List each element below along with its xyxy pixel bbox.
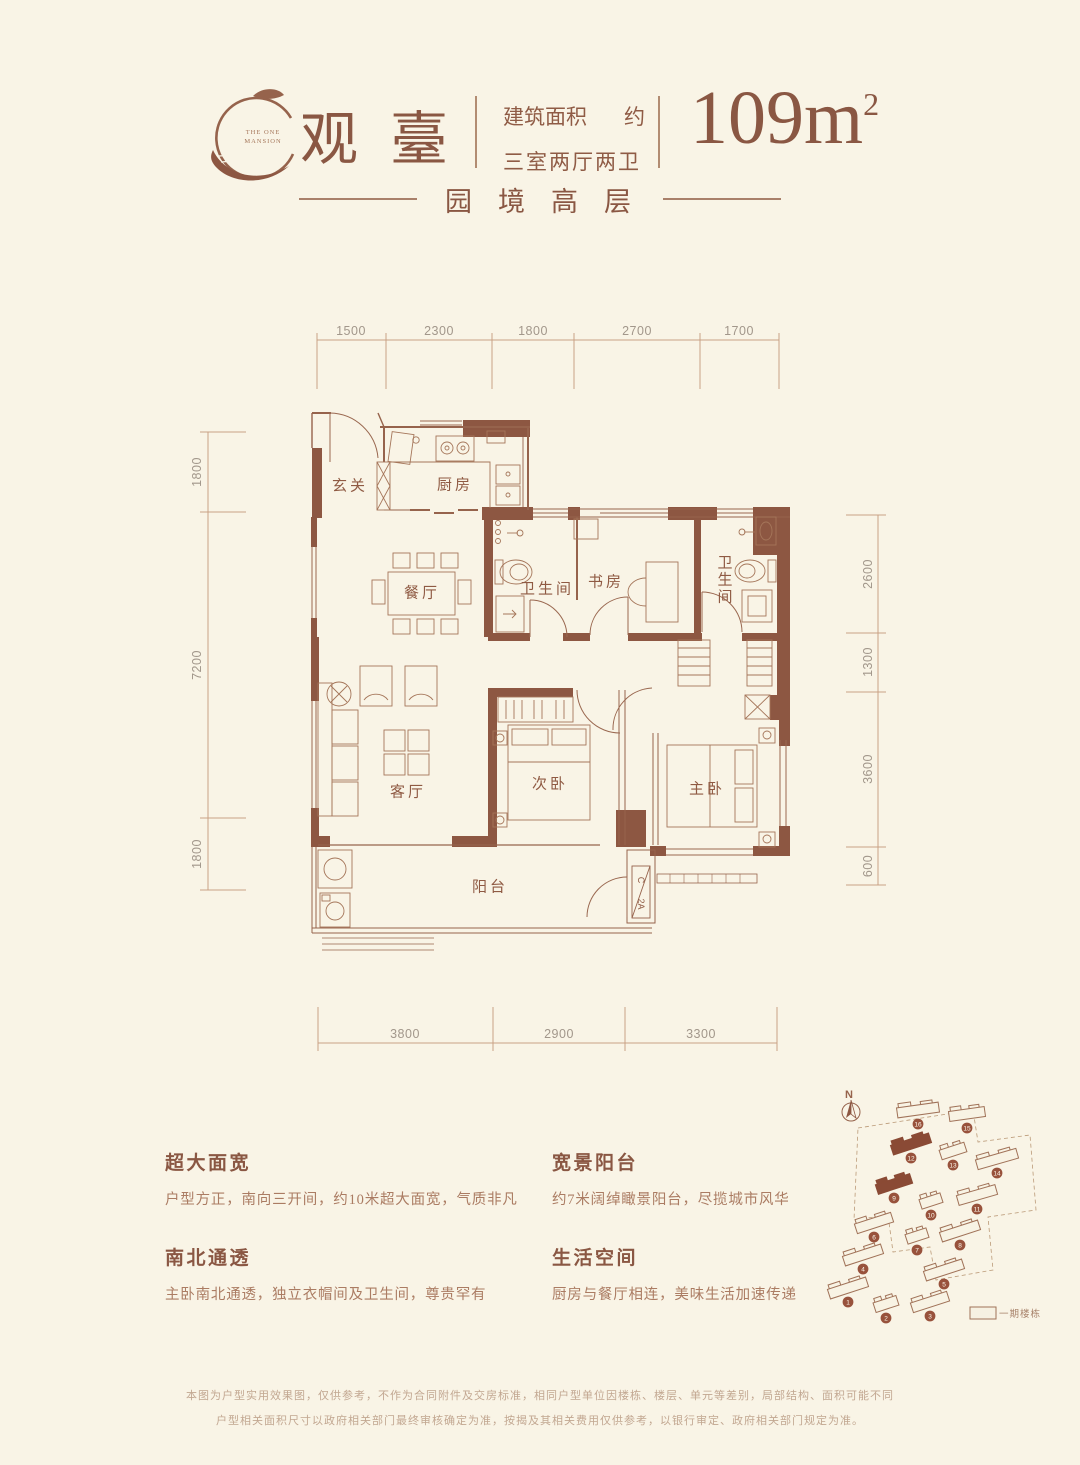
site-building-1: 1	[826, 1273, 868, 1307]
site-building-13: 13	[938, 1138, 967, 1170]
site-building-9: 9	[874, 1170, 913, 1204]
feature-title: 超大面宽	[165, 1148, 535, 1175]
brand-logo: THE ONE MANSION	[205, 80, 305, 192]
site-building-5: 5	[922, 1255, 964, 1289]
legend-label: 一期楼栋	[999, 1306, 1041, 1320]
site-building-15: 15	[948, 1103, 986, 1134]
area-value: 109m2	[690, 80, 879, 156]
room-label-balcony: 阳台	[472, 876, 508, 897]
legend-swatch	[970, 1307, 996, 1319]
header-divider-2	[658, 96, 660, 168]
room-label-bedroom2: 次卧	[532, 773, 568, 794]
subtitle-row: 园境高层	[0, 182, 1080, 216]
dim-right-2: 1300	[861, 647, 875, 677]
site-building-10: 10	[918, 1189, 943, 1220]
page-title: 观臺	[300, 92, 480, 176]
north-label: N	[845, 1089, 853, 1101]
dim-left-2: 7200	[190, 650, 204, 680]
site-building-14: 14	[974, 1145, 1018, 1179]
site-building-8: 8	[938, 1216, 980, 1250]
dim-right-3: 3600	[861, 754, 875, 784]
svg-text:3: 3	[928, 1313, 932, 1320]
feature-desc: 户型方正，南向三开间，约10米超大面宽，气质非凡	[165, 1188, 535, 1209]
disclaimer-line-2: 户型相关面积尺寸以政府相关部门最终审核确定为准，按揭及其相关费用仅供参考，以银行…	[0, 1409, 1080, 1434]
area-label: 建筑面积	[503, 101, 587, 131]
dim-bottom-1: 3800	[390, 1027, 420, 1041]
dim-top-3: 1800	[518, 324, 548, 338]
feature-desc: 主卧南北通透，独立衣帽间及卫生间，尊贵罕有	[165, 1283, 535, 1304]
dim-top-1: 1500	[336, 324, 366, 338]
site-buildings: 16151213149101167845123	[826, 1098, 1018, 1323]
feature-northsouth: 南北通透 主卧南北通透，独立衣帽间及卫生间，尊贵罕有	[165, 1243, 535, 1304]
header-info: 建筑面积 约 三室两厅两卫	[503, 101, 645, 176]
room-label-living: 客厅	[390, 781, 426, 802]
room-label-study: 书房	[588, 571, 624, 592]
floorplan-drawing	[180, 300, 900, 1080]
dim-bottom-3: 3300	[686, 1027, 716, 1041]
subtitle: 园境高层	[445, 180, 657, 219]
svg-text:6: 6	[872, 1234, 876, 1241]
area-approx: 约	[624, 101, 645, 131]
room-label-bath2: 卫生间	[714, 555, 735, 606]
svg-text:14: 14	[993, 1170, 1001, 1177]
dim-right-4: 600	[861, 855, 875, 877]
subtitle-line-right	[663, 198, 781, 200]
ac-platform-label-2a: 2A	[636, 898, 646, 909]
dim-top-5: 1700	[724, 324, 754, 338]
svg-text:16: 16	[914, 1121, 922, 1128]
site-building-12: 12	[889, 1129, 931, 1163]
room-label-bath1: 卫生间	[520, 578, 574, 599]
site-building-4: 4	[841, 1240, 883, 1274]
doors	[330, 413, 742, 917]
wall-lines	[312, 413, 790, 950]
svg-text:8: 8	[958, 1242, 962, 1249]
site-building-3: 3	[909, 1288, 949, 1322]
dim-left-3: 1800	[190, 839, 204, 869]
dim-bottom-2: 2900	[544, 1027, 574, 1041]
disclaimer-line-1: 本图为户型实用效果图，仅供参考，不作为合同附件及交房标准，相同户型单位因楼栋、楼…	[0, 1384, 1080, 1409]
svg-text:10: 10	[927, 1212, 935, 1219]
site-building-16: 16	[896, 1098, 940, 1129]
svg-text:13: 13	[949, 1162, 957, 1169]
svg-text:5: 5	[942, 1281, 946, 1288]
logo-caption-line1: THE ONE	[246, 129, 281, 136]
svg-text:15: 15	[963, 1125, 971, 1132]
site-building-6: 6	[853, 1209, 893, 1243]
room-label-kitchen: 厨房	[437, 474, 473, 495]
room-label-dining: 餐厅	[404, 582, 440, 603]
svg-text:9: 9	[892, 1195, 896, 1202]
svg-text:1: 1	[846, 1299, 850, 1306]
subtitle-line-left	[299, 198, 417, 200]
header-divider-1	[475, 96, 477, 168]
layout-label: 三室两厅两卫	[503, 146, 645, 176]
dim-top-2: 2300	[424, 324, 454, 338]
svg-text:2: 2	[884, 1315, 888, 1322]
disclaimer: 本图为户型实用效果图，仅供参考，不作为合同附件及交房标准，相同户型单位因楼栋、楼…	[0, 1384, 1080, 1435]
floorplan-poster: { "header": { "logo_caption_1": "THE ONE…	[0, 0, 1080, 1465]
svg-text:12: 12	[907, 1155, 915, 1162]
svg-text:7: 7	[915, 1247, 919, 1254]
svg-text:11: 11	[974, 1206, 981, 1213]
site-building-11: 11	[955, 1181, 997, 1215]
dim-right-1: 2600	[861, 559, 875, 589]
svg-text:4: 4	[861, 1266, 865, 1273]
logo-caption-line2: MANSION	[244, 138, 281, 145]
site-building-2: 2	[872, 1292, 899, 1324]
furniture	[318, 431, 776, 927]
feature-title: 南北通透	[165, 1243, 535, 1270]
compass-icon	[842, 1100, 860, 1121]
dim-top-4: 2700	[622, 324, 652, 338]
area-superscript: 2	[863, 86, 879, 122]
feature-width: 超大面宽 户型方正，南向三开间，约10米超大面宽，气质非凡	[165, 1148, 535, 1209]
room-label-foyer: 玄关	[332, 475, 368, 496]
room-label-master: 主卧	[689, 778, 725, 799]
dim-left-1: 1800	[190, 457, 204, 487]
ac-platform-label-c: C	[636, 877, 646, 884]
site-building-7: 7	[904, 1224, 929, 1255]
